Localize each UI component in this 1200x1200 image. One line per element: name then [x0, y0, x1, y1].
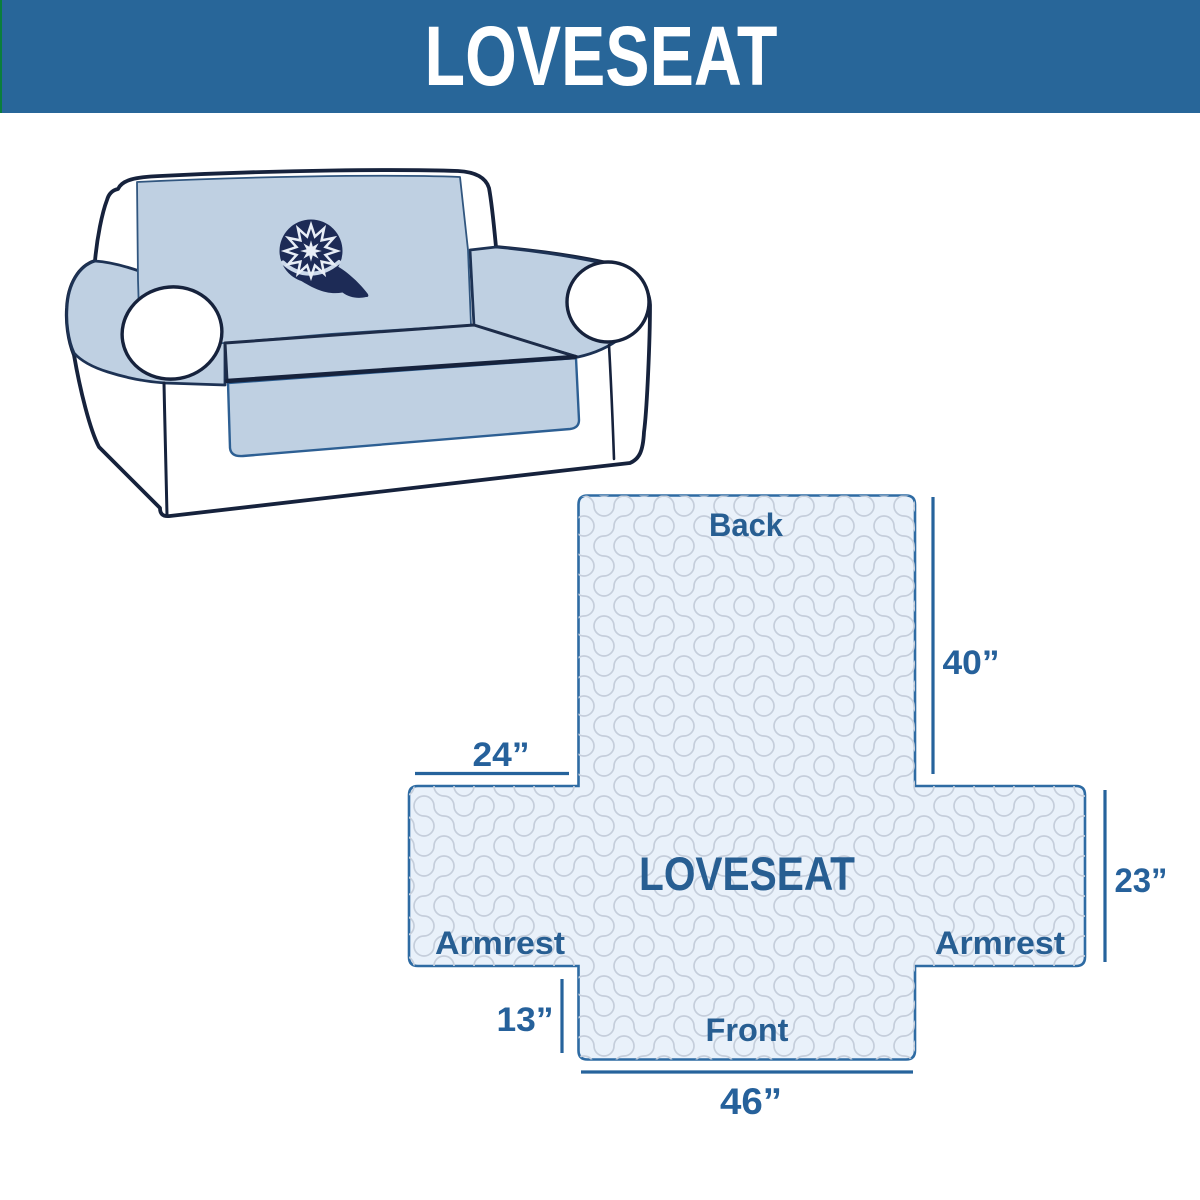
svg-text:LOVESEAT: LOVESEAT — [639, 847, 855, 900]
svg-text:Armrest: Armrest — [935, 925, 1065, 961]
svg-text:LOVESEAT: LOVESEAT — [425, 9, 778, 103]
svg-text:40”: 40” — [943, 644, 1000, 682]
svg-text:13”: 13” — [497, 1001, 554, 1039]
svg-text:46”: 46” — [720, 1081, 782, 1122]
svg-text:Front: Front — [706, 1012, 789, 1048]
svg-text:Back: Back — [709, 507, 784, 543]
svg-text:Armrest: Armrest — [435, 925, 565, 961]
svg-text:24”: 24” — [473, 736, 530, 774]
svg-text:23”: 23” — [1115, 862, 1168, 900]
